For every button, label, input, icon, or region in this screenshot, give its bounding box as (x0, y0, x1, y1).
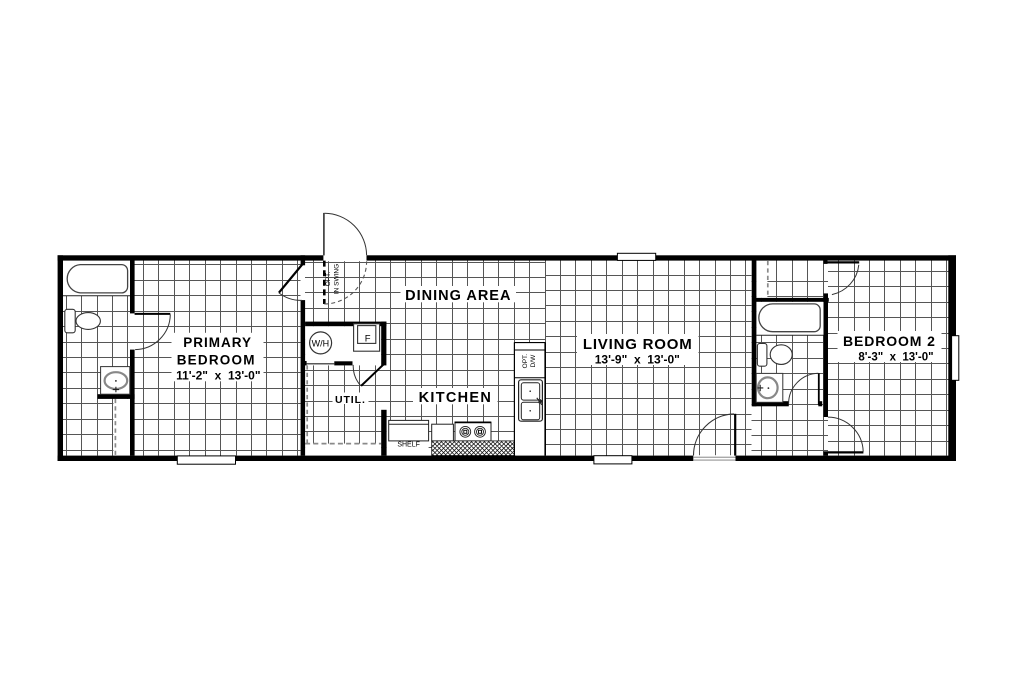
svg-text:OPT.: OPT. (522, 354, 529, 369)
svg-text:PRIMARY: PRIMARY (183, 335, 252, 350)
svg-text:W/H: W/H (312, 338, 330, 348)
svg-text:11'-2" x 13'-0": 11'-2" x 13'-0" (176, 369, 260, 383)
svg-text:SHELF: SHELF (397, 442, 420, 449)
svg-text:KITCHEN: KITCHEN (419, 390, 493, 406)
svg-text:13'-9" x 13'-0": 13'-9" x 13'-0" (595, 353, 680, 367)
svg-text:DINING AREA: DINING AREA (405, 288, 511, 304)
svg-text:LIVING ROOM: LIVING ROOM (583, 336, 693, 353)
svg-text:UTIL.: UTIL. (335, 394, 366, 406)
svg-text:F: F (365, 334, 371, 345)
svg-text:BEDROOM 2: BEDROOM 2 (843, 333, 936, 349)
svg-text:8'-3" x 13'-0": 8'-3" x 13'-0" (858, 352, 933, 364)
svg-text:D/W: D/W (530, 354, 537, 368)
svg-text:BEDROOM: BEDROOM (177, 352, 256, 367)
svg-text:IN SWING: IN SWING (334, 264, 341, 294)
svg-text:OPT.: OPT. (325, 272, 332, 287)
